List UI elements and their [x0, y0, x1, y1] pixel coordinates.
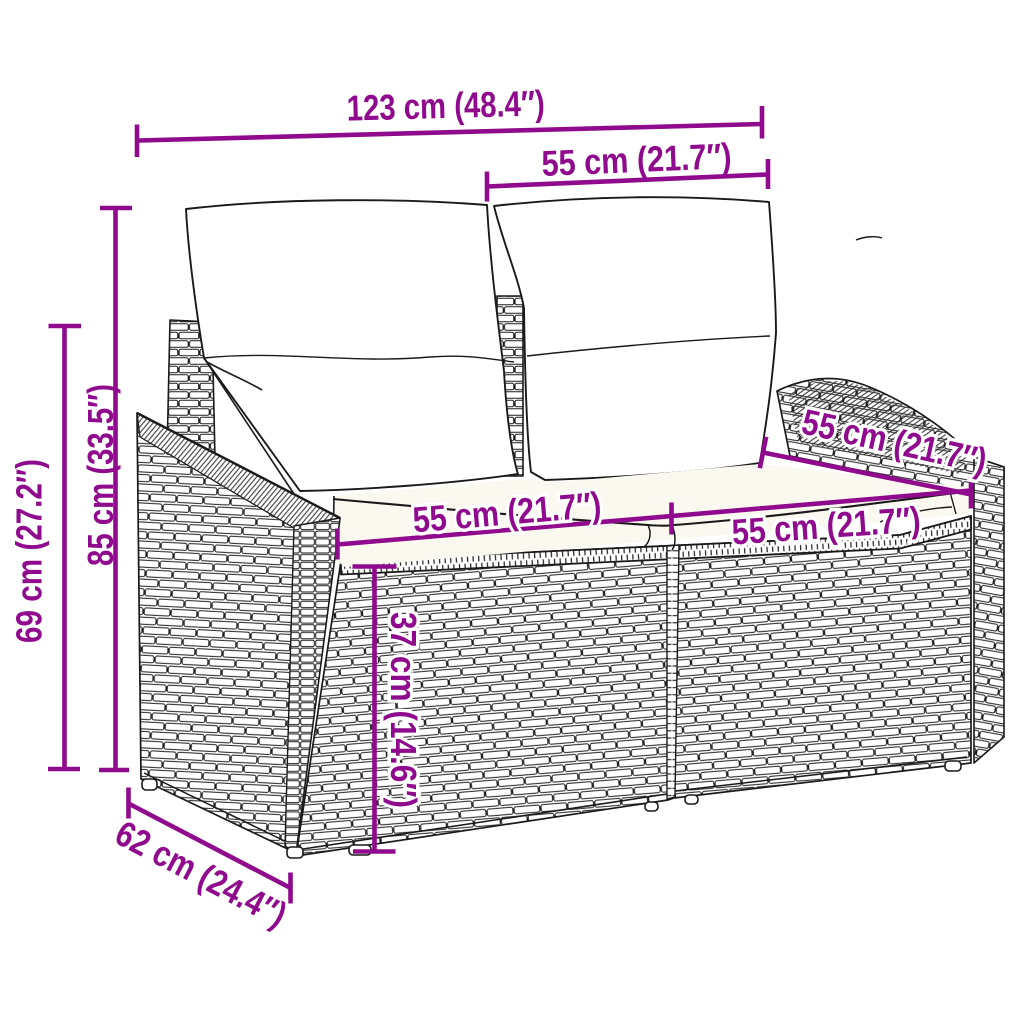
svg-text:37 cm (14.6″): 37 cm (14.6″) [383, 612, 424, 808]
svg-text:123 cm (48.4″): 123 cm (48.4″) [346, 82, 545, 128]
svg-text:85 cm (33.5″): 85 cm (33.5″) [80, 384, 121, 566]
svg-text:69 cm (27.2″): 69 cm (27.2″) [9, 459, 50, 643]
svg-text:55 cm (21.7″): 55 cm (21.7″) [541, 135, 733, 184]
